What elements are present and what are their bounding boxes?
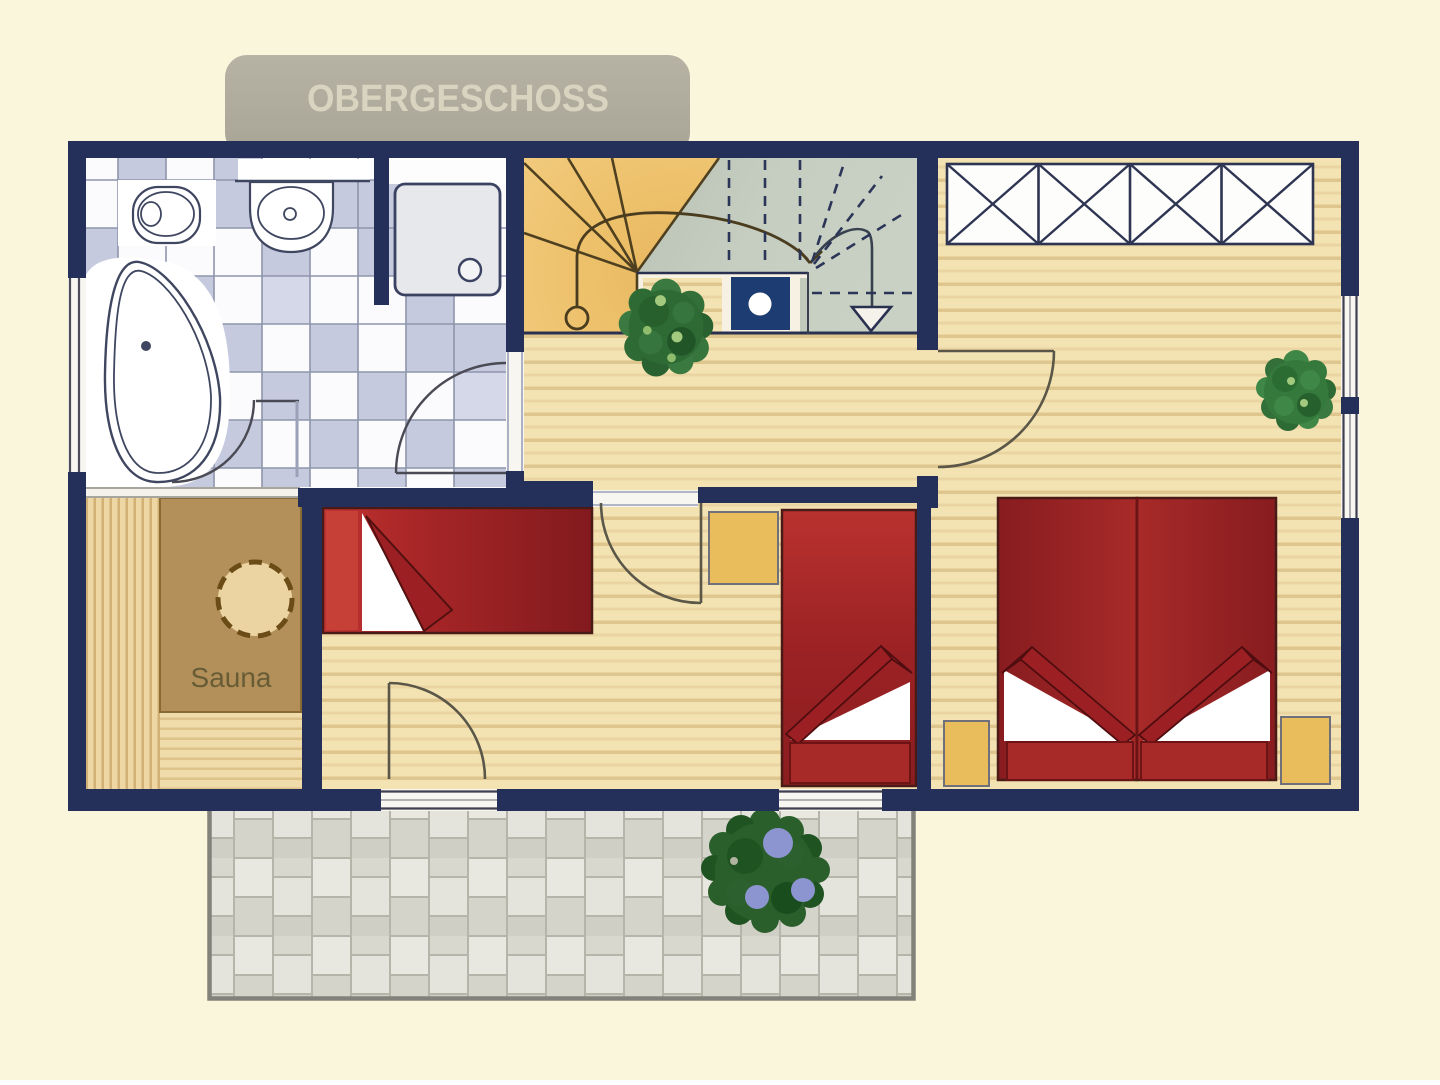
svg-text:OBERGESCHOSS: OBERGESCHOSS: [307, 78, 609, 120]
svg-text:Sauna: Sauna: [191, 662, 272, 693]
